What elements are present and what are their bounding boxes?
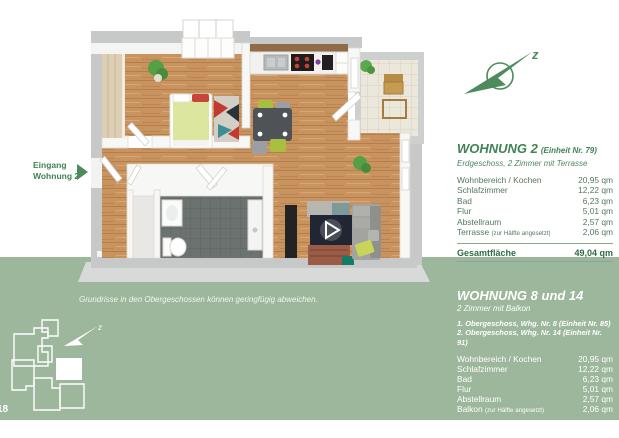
hall-floor: [102, 166, 127, 258]
area-row-schlafzimmer: Schlafzimmer 12,22 qm: [457, 185, 613, 195]
floor-note-2: 2. Obergeschoss, Whg. Nr. 14 (Einheit Nr…: [457, 328, 613, 347]
tv-sideboard: [285, 205, 297, 258]
kitchen-sink: [264, 55, 288, 70]
north-arrow-compass-icon: z: [458, 42, 550, 102]
total-label: Gesamtfläche: [457, 424, 516, 434]
living-rug-stack: [307, 201, 354, 265]
floorplan-svg: [70, 8, 462, 298]
living-window-1: [402, 140, 409, 162]
total-value: 49,04 qm: [574, 248, 613, 258]
terrace: [355, 52, 424, 144]
hall-corridor-floor: [102, 148, 250, 166]
svg-text:z: z: [97, 323, 102, 332]
apartment-2-title-line: WOHNUNG 2(Einheit Nr. 79): [457, 140, 613, 158]
apartment-2-subtitle: Erdgeschoss, 2 Zimmer mit Terrasse: [457, 159, 613, 168]
kitchen-stove: [291, 54, 314, 71]
sofa: [352, 204, 381, 260]
terrace-chair: [384, 74, 403, 94]
site-plan-svg: z: [4, 316, 108, 416]
living-window-2: [402, 168, 409, 190]
floorplan-3d-render: [70, 8, 462, 298]
bedroom-wardrobe: [102, 54, 125, 138]
area-row-flur: Flur 5,01 qm: [457, 206, 613, 216]
terrasse-note: (zur Hälfte angesetzt): [491, 230, 550, 237]
area-row-abstellraum: Abstellraum 2,57 qm: [457, 217, 613, 227]
area-row-terrasse: Terrasse (zur Hälfte angesetzt) 2,06 qm: [457, 227, 613, 239]
area-row-bad: Bad 6,23 qm: [457, 374, 613, 384]
total-label: Gesamtfläche: [457, 248, 516, 258]
dining-chair-gray-2: [252, 141, 267, 154]
area-row-balkon: Balkon (zur Hälfte angesetzt) 2,06 qm: [457, 404, 613, 416]
dining-chair-green-2: [270, 139, 286, 152]
coffee-machine: [322, 55, 333, 70]
storage-room-floor: [133, 190, 154, 258]
balkon-note: (zur Hälfte angesetzt): [485, 407, 544, 414]
toilet: [163, 238, 186, 256]
bedroom-shelf-unit: [182, 38, 234, 58]
area-row-wohnbereich: Wohnbereich / Kochen 20,95 qm: [457, 354, 613, 364]
floor-note-1: 1. Obergeschoss, Whg. Nr. 8 (Einheit Nr.…: [457, 319, 613, 328]
entrance-opening: [91, 158, 102, 188]
site-plan-mini-map: z: [4, 316, 108, 416]
apartment-2-title: WOHNUNG 2: [457, 141, 538, 156]
apartment-8-14-title: WOHNUNG 8 und 14: [457, 288, 613, 303]
entrance-label: Eingang Wohnung 2: [33, 160, 83, 182]
area-row-wohnbereich: Wohnbereich / Kochen 20,95 qm: [457, 175, 613, 185]
entrance-arrow-icon: [77, 164, 88, 180]
mini-map-compass-icon: z: [64, 323, 102, 346]
apartment-2-area-table: Wohnbereich / Kochen 20,95 qm Schlafzimm…: [457, 175, 613, 239]
area-row-abstellraum: Abstellraum 2,57 qm: [457, 394, 613, 404]
dining-set: [252, 100, 292, 154]
total-value: 49,04 qm: [574, 424, 613, 434]
area-row-bad: Bad 6,23 qm: [457, 196, 613, 206]
apartment-8-14-floor-notes: 1. Obergeschoss, Whg. Nr. 8 (Einheit Nr.…: [457, 319, 613, 347]
apartment-2-unit-note: (Einheit Nr. 79): [541, 146, 597, 155]
compass-svg: z: [458, 42, 550, 102]
brochure-page: Eingang Wohnung 2 z WOHNUNG 2(Einheit Nr…: [0, 0, 619, 420]
apartment-8-14-total: Gesamtfläche 49,04 qm: [457, 420, 613, 438]
kitchen-side-window: [351, 58, 358, 88]
bathroom-sink: [162, 200, 182, 226]
apartment-2-panel: WOHNUNG 2(Einheit Nr. 79) Erdgeschoss, 2…: [457, 140, 613, 262]
apartment-8-14-subtitle: 2 Zimmer mit Balkon: [457, 304, 613, 313]
apartment-8-14-panel: WOHNUNG 8 und 14 2 Zimmer mit Balkon 1. …: [457, 288, 613, 438]
area-row-schlafzimmer: Schlafzimmer 12,22 qm: [457, 364, 613, 374]
page-number: 18: [0, 404, 8, 415]
bedroom-rug: [214, 96, 239, 142]
bed: [170, 94, 212, 148]
kitchen-counter: [250, 44, 348, 74]
apartment-2-total: Gesamtfläche 49,04 qm: [457, 243, 613, 262]
kitchen-kettle: [315, 59, 320, 64]
apartment-8-14-area-table: Wohnbereich / Kochen 20,95 qm Schlafzimm…: [457, 354, 613, 416]
area-row-flur: Flur 5,01 qm: [457, 384, 613, 394]
floorplan-disclaimer: Grundrisse in den Obergeschossen können …: [79, 295, 318, 304]
highlighted-building: [56, 358, 82, 380]
compass-letter: z: [531, 47, 539, 62]
shower: [248, 200, 262, 250]
sofa-pillow-gray: [368, 230, 379, 241]
kitchen-tall-cabinet: [336, 52, 348, 74]
